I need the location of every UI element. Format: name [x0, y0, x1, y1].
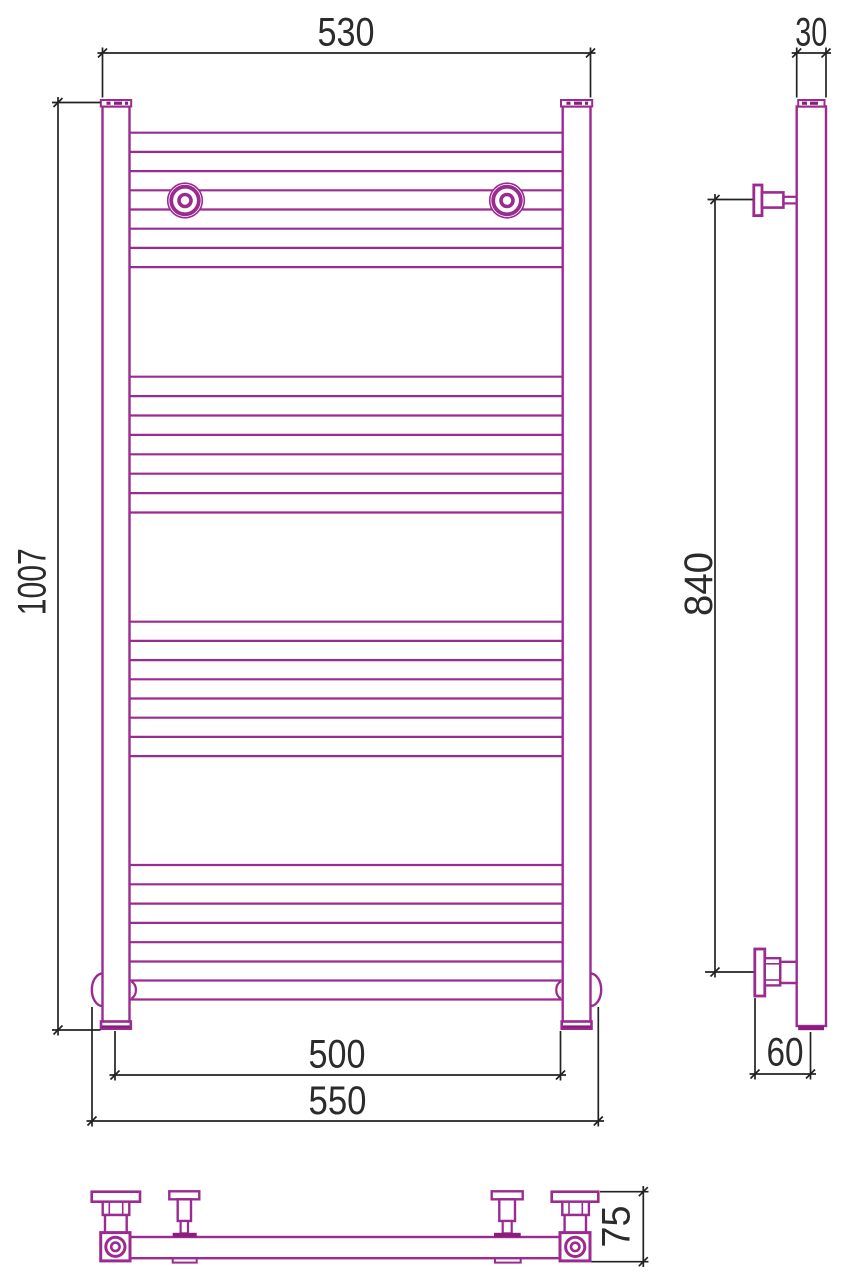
union-inner-ring	[571, 1243, 579, 1251]
dimension-ticks	[54, 49, 831, 1267]
valve-nut	[765, 958, 780, 985]
valve-hex-collar	[103, 1202, 130, 1215]
collector-left-joint-arc	[132, 982, 136, 999]
valve-flange	[92, 1192, 140, 1202]
valve-body	[105, 1215, 127, 1233]
bracket-arm	[762, 192, 783, 207]
collector-left-cap-arc	[92, 974, 103, 1007]
bracket-tab	[495, 1258, 521, 1262]
cap-mark	[567, 102, 571, 105]
dim-label-post-axis-spacing: 500	[309, 1033, 366, 1077]
technical-drawing-canvas: 530 30 1007 840 500 550 60	[0, 0, 847, 1280]
bracket-stem	[503, 1221, 512, 1233]
dim-label-overall-height: 1007	[11, 548, 55, 615]
cap-mark	[125, 102, 128, 105]
left-post	[103, 107, 130, 1023]
left-post-foot-base	[102, 1025, 130, 1028]
bracket-arm	[178, 1199, 191, 1221]
dimensions: 530 30 1007 840 500 550 60	[11, 11, 832, 1268]
bracket-foot	[494, 1233, 521, 1237]
right-bracket-flange	[490, 183, 525, 218]
side-upper-bracket	[754, 185, 797, 216]
right-valve-assembly	[552, 1192, 599, 1261]
left-bracket-flange	[168, 183, 203, 218]
side-lower-bracket	[755, 949, 797, 996]
bracket-inner-ring	[501, 195, 513, 207]
cap-mark	[810, 102, 818, 105]
dim-label-bracket-span: 840	[677, 552, 721, 616]
collector-tube-top-view	[130, 1237, 560, 1258]
valve-body	[565, 1215, 586, 1233]
valve-hex-collar	[562, 1202, 589, 1215]
valve-stem	[780, 962, 797, 983]
side-tube	[797, 107, 826, 1027]
cap-mark	[585, 102, 588, 105]
rung-lines	[130, 133, 563, 1000]
union-inner-ring	[111, 1243, 119, 1251]
valve-flange	[552, 1192, 599, 1202]
right-post	[563, 107, 591, 1023]
dim-label-bottom-tube-length: 550	[309, 1079, 367, 1123]
cap-mark	[107, 102, 111, 105]
dim-label-overall-width: 530	[318, 11, 375, 55]
dim-label-wall-to-axis: 60	[767, 1031, 804, 1075]
side-view	[754, 100, 826, 1030]
bracket-foot	[173, 1233, 197, 1237]
collector-right-joint-arc	[556, 982, 560, 999]
valve-wall-plate	[755, 949, 765, 996]
cap-mark	[802, 102, 807, 105]
cap-mark	[574, 102, 582, 105]
collector-right-cap-arc	[591, 974, 602, 1007]
bracket-stem	[181, 1221, 188, 1233]
bottom-view	[92, 1191, 599, 1262]
bracket-inner-ring	[179, 195, 191, 207]
front-view	[92, 100, 601, 1029]
dim-label-depth: 75	[595, 1206, 639, 1248]
cap-mark	[114, 102, 122, 105]
drawing-page: 530 30 1007 840 500 550 60	[0, 0, 847, 1280]
bracket-tab	[173, 1258, 197, 1262]
right-post-foot-base	[563, 1025, 591, 1028]
dim-label-tube-diameter: 30	[795, 11, 827, 55]
bracket-arm	[499, 1199, 515, 1221]
